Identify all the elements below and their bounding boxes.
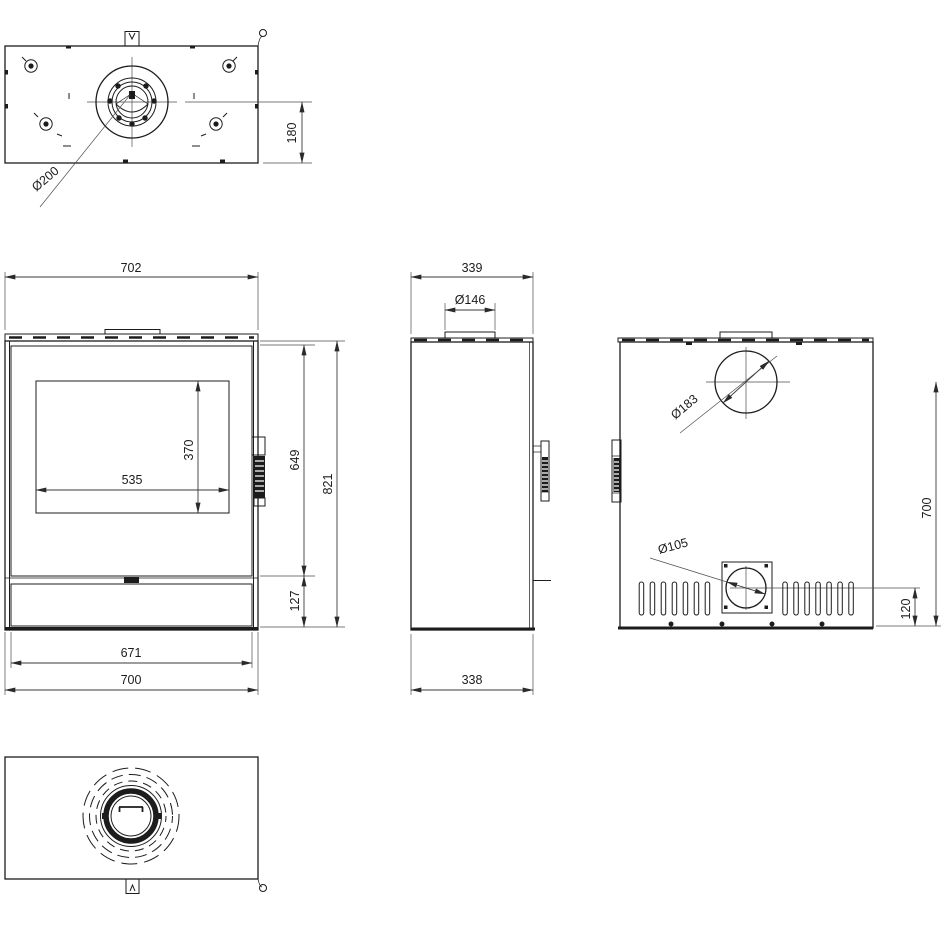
body-rear-outline — [620, 342, 873, 628]
dim-front-glass-height: 370 — [182, 440, 196, 461]
dim-front-inner-width: 671 — [121, 646, 142, 660]
dim-front-overall-height: 821 — [321, 474, 335, 495]
vent-slots-right — [783, 582, 854, 615]
dim-side-collar-diameter: Ø146 — [455, 293, 486, 307]
dim-rear-flue-height: 700 — [920, 498, 934, 519]
side-view: 339 Ø146 338 — [411, 261, 551, 695]
door-handle-side — [533, 441, 549, 501]
rear-top-tab — [720, 332, 772, 338]
dim-front-door-height: 649 — [288, 450, 302, 471]
intake-bracket — [119, 807, 143, 812]
dim-front-base-width: 700 — [121, 673, 142, 687]
plinth-panel — [11, 584, 252, 626]
rear-bottom-screws — [669, 622, 825, 627]
flue-collar-side — [445, 332, 495, 338]
top-plate-fixing-marks — [5, 46, 258, 163]
vent-slots-left — [639, 582, 710, 615]
stove-dimension-drawing: 180 Ø200 702 535 370 649 127 — [0, 0, 945, 945]
dim-side-base-depth: 338 — [462, 673, 483, 687]
bottom-plate-outline — [5, 757, 258, 879]
lifting-eyelet — [258, 30, 267, 47]
top-plate-outline — [5, 46, 258, 163]
top-view: 180 Ø200 — [5, 30, 312, 208]
dim-front-width-overall: 702 — [121, 261, 142, 275]
door-glass — [36, 381, 229, 513]
dim-top-flue-diameter: Ø200 — [29, 164, 61, 194]
air-control-slider — [124, 577, 139, 583]
rear-heat-shield-tab — [125, 32, 139, 47]
intake-ring — [106, 791, 156, 841]
lifting-eyelet-bottom — [258, 879, 267, 892]
dim-front-plinth-height: 127 — [288, 591, 302, 612]
technical-drawing-canvas: 180 Ø200 702 535 370 649 127 — [0, 0, 945, 945]
flue-collar-top — [87, 57, 177, 147]
bottom-view — [5, 757, 267, 894]
bottom-tab — [126, 879, 139, 894]
flue-centerlines — [87, 57, 177, 147]
air-intake: Ø105 — [650, 535, 920, 613]
handle-grip-side — [542, 457, 548, 492]
rear-flue-knockout: Ø183 — [668, 347, 790, 433]
air-intake-plate — [722, 562, 772, 613]
top-lip — [105, 330, 160, 335]
handle-stem — [533, 446, 541, 452]
handle-base — [254, 498, 265, 506]
dim-rear-intake-height: 120 — [899, 599, 913, 620]
rear-view: Ø183 Ø105 — [612, 332, 941, 628]
front-view: 702 535 370 649 127 821 671 700 — [5, 261, 345, 695]
handle-grip — [254, 456, 265, 498]
body-side-outline — [411, 342, 533, 630]
bottom-air-rosette — [83, 768, 179, 864]
dim-top-flue-to-front: 180 — [285, 123, 299, 144]
dim-side-depth-overall: 339 — [462, 261, 483, 275]
dim-rear-intake-diameter: Ø105 — [656, 535, 689, 556]
dim-front-glass-width: 535 — [122, 473, 143, 487]
dim-rear-flue-diameter: Ø183 — [668, 392, 700, 422]
